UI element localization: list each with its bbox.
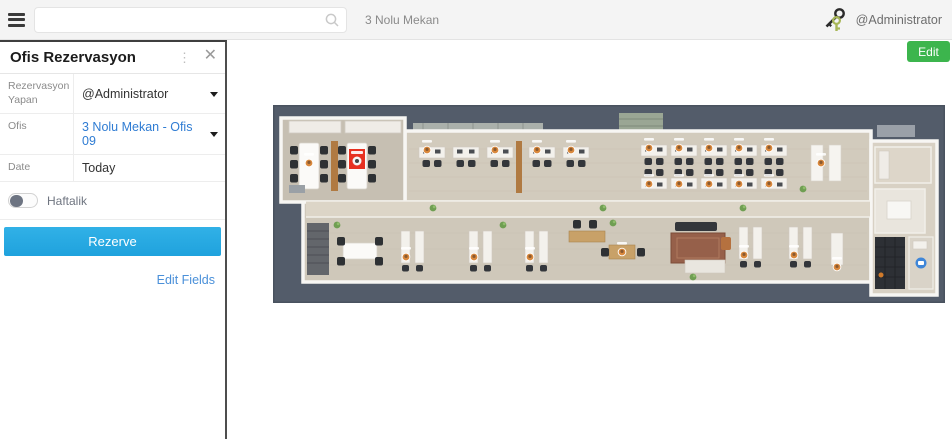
menu-icon[interactable]: [8, 13, 26, 27]
rezervasyon-yapan-select[interactable]: @Administrator: [74, 74, 225, 113]
field-ofis: Ofis 3 Nolu Mekan - Ofis 09: [0, 114, 225, 155]
date-field[interactable]: Today: [74, 155, 225, 181]
field-date: Date Today: [0, 155, 225, 182]
selected-desk-marker: [349, 149, 365, 169]
search-box: [34, 7, 347, 33]
search-input[interactable]: [34, 7, 347, 33]
user-label[interactable]: @Administrator: [856, 13, 942, 27]
haftalik-row: Haftalik: [0, 182, 225, 220]
main-area: Edit: [227, 40, 952, 439]
field-label: Rezervasyon Yapan: [0, 74, 74, 113]
chevron-down-icon[interactable]: [210, 92, 218, 97]
chevron-down-icon[interactable]: [210, 132, 218, 137]
toggle-knob: [10, 195, 23, 208]
rezerve-button[interactable]: Rezerve: [4, 227, 221, 256]
close-icon[interactable]: ✕: [204, 48, 217, 64]
panel-header: Ofis Rezervasyon ⋮ ✕: [0, 42, 225, 74]
floor-plan-image[interactable]: [273, 105, 945, 303]
field-label: Date: [0, 155, 74, 181]
topbar: 3 Nolu Mekan @Administrator: [0, 0, 952, 40]
topbar-right: @Administrator: [821, 6, 942, 34]
ofis-select[interactable]: 3 Nolu Mekan - Ofis 09: [74, 114, 225, 154]
edit-button[interactable]: Edit: [907, 41, 950, 62]
keys-icon[interactable]: [821, 6, 848, 34]
more-options-icon[interactable]: ⋮: [178, 50, 191, 66]
haftalik-toggle[interactable]: [8, 193, 38, 208]
search-icon: [324, 12, 340, 28]
edit-fields-link[interactable]: Edit Fields: [0, 273, 215, 287]
haftalik-label: Haftalik: [47, 194, 87, 208]
field-label: Ofis: [0, 114, 74, 154]
panel-title: Ofis Rezervasyon: [10, 49, 136, 66]
field-rezervasyon-yapan: Rezervasyon Yapan @Administrator: [0, 74, 225, 114]
reservation-panel: Ofis Rezervasyon ⋮ ✕ Rezervasyon Yapan @…: [0, 40, 227, 439]
location-label: 3 Nolu Mekan: [365, 13, 439, 27]
